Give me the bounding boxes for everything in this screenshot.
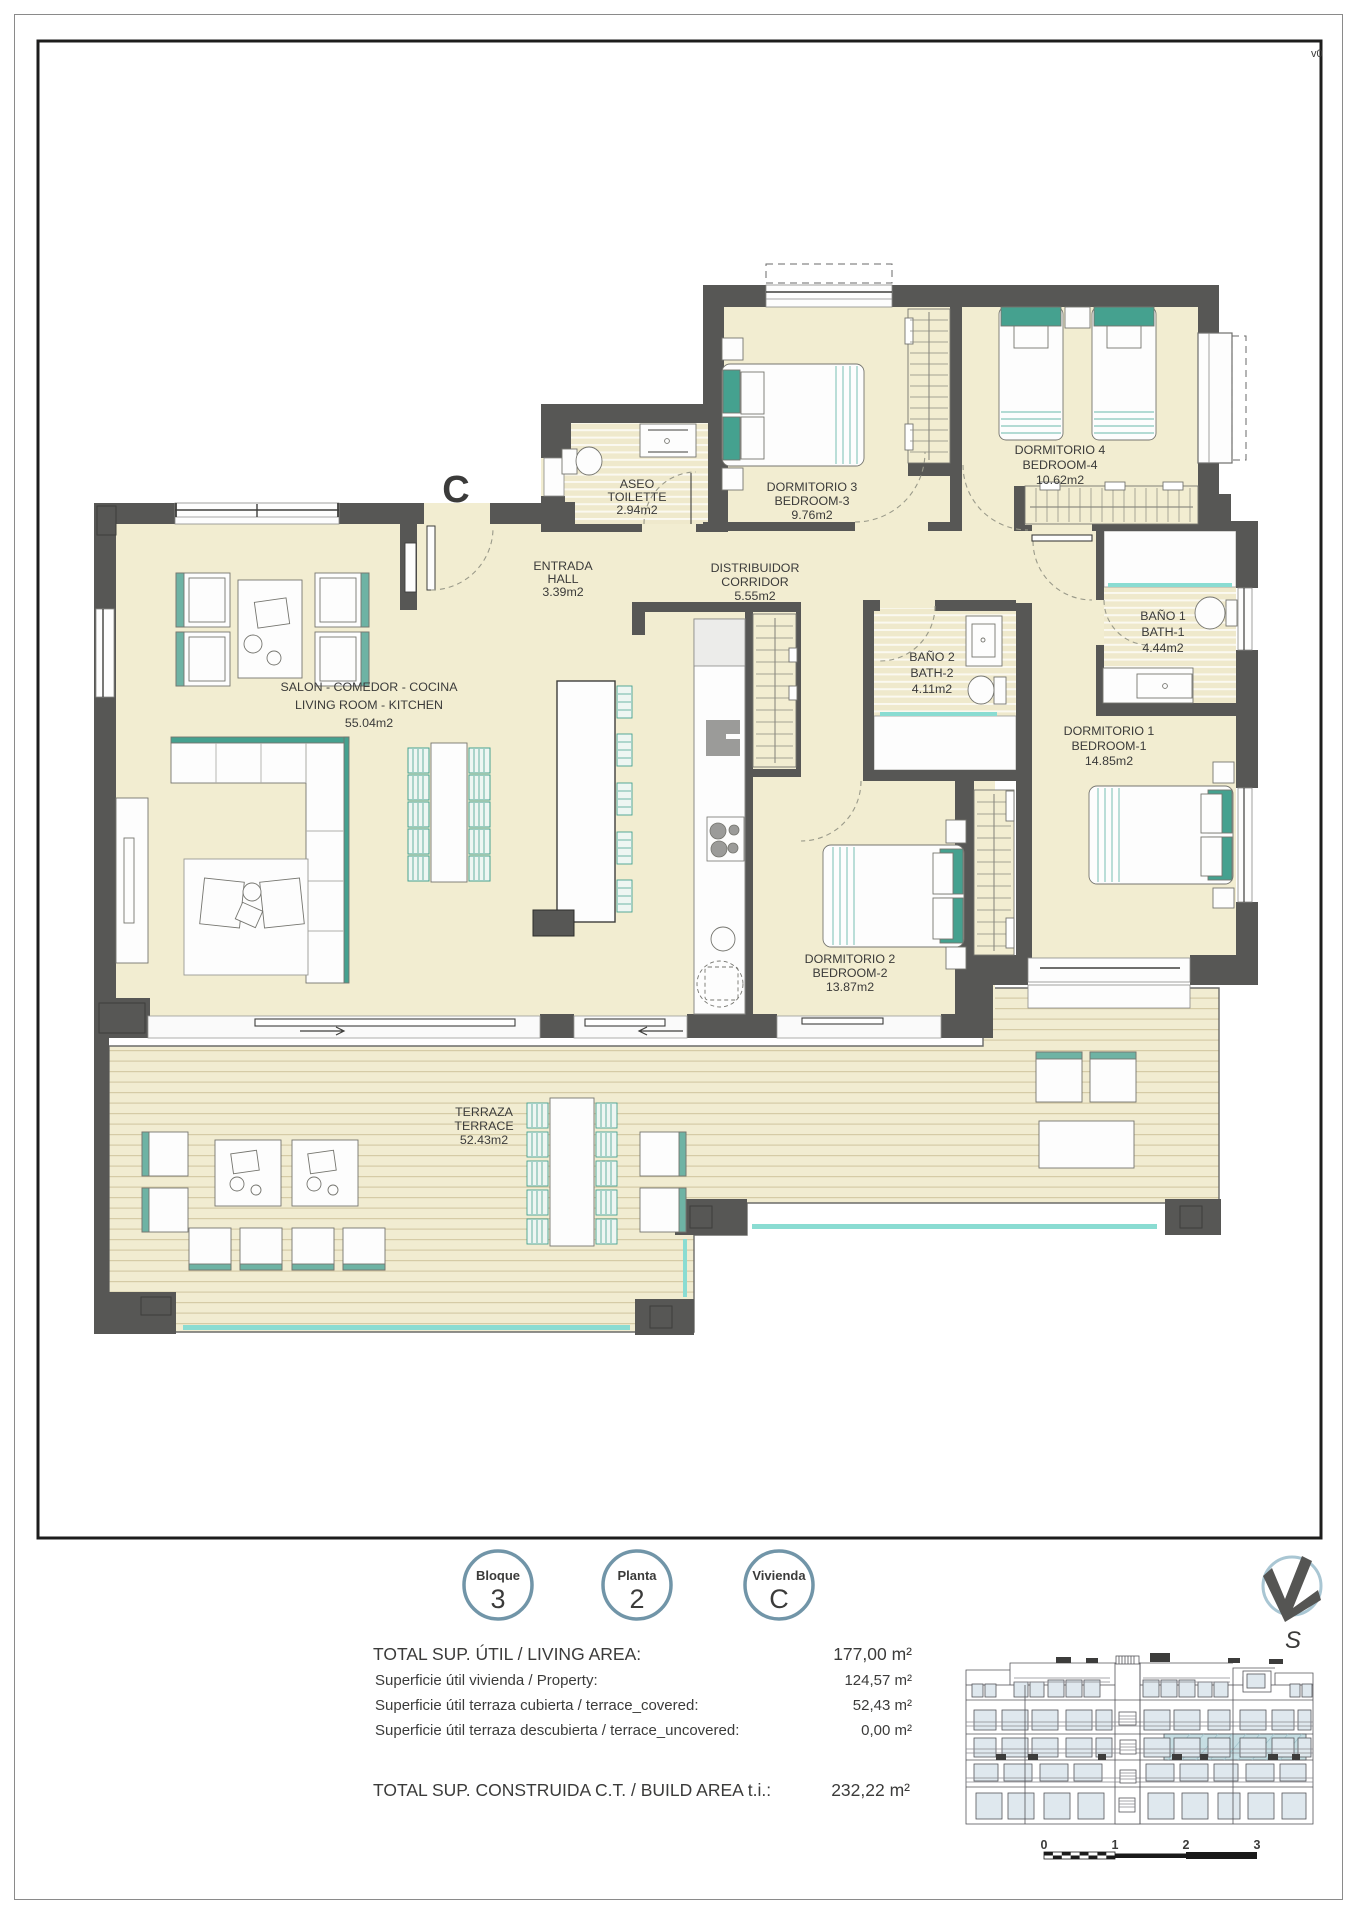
svg-text:BEDROOM-4: BEDROOM-4 <box>1022 458 1097 472</box>
svg-text:ENTRADA: ENTRADA <box>533 559 593 573</box>
svg-text:9.76m2: 9.76m2 <box>791 508 832 522</box>
svg-text:TOILETTE: TOILETTE <box>608 490 667 504</box>
svg-text:10.62m2: 10.62m2 <box>1036 473 1084 487</box>
svg-text:S: S <box>1285 1627 1301 1654</box>
svg-text:BEDROOM-2: BEDROOM-2 <box>812 966 887 980</box>
svg-text:BATH-2: BATH-2 <box>910 666 953 680</box>
svg-text:TOTAL SUP. ÚTIL / LIVING AREA:: TOTAL SUP. ÚTIL / LIVING AREA: <box>373 1643 641 1664</box>
svg-text:Superficie útil terraza descub: Superficie útil terraza descubierta / te… <box>375 1722 739 1739</box>
svg-text:DORMITORIO 4: DORMITORIO 4 <box>1015 443 1106 457</box>
svg-text:124,57 m²: 124,57 m² <box>844 1672 912 1689</box>
svg-text:232,22 m²: 232,22 m² <box>831 1780 910 1800</box>
svg-text:C: C <box>442 469 469 511</box>
svg-text:BEDROOM-3: BEDROOM-3 <box>774 494 849 508</box>
svg-text:2: 2 <box>629 1584 644 1614</box>
svg-text:0,00 m²: 0,00 m² <box>861 1722 912 1739</box>
svg-text:177,00 m²: 177,00 m² <box>833 1644 912 1664</box>
svg-text:52,43 m²: 52,43 m² <box>853 1697 912 1714</box>
svg-text:4.11m2: 4.11m2 <box>912 682 953 696</box>
svg-text:TOTAL SUP. CONSTRUIDA C.T. / B: TOTAL SUP. CONSTRUIDA C.T. / BUILD AREA … <box>373 1780 771 1800</box>
svg-text:Superficie útil terraza cubier: Superficie útil terraza cubierta / terra… <box>375 1697 699 1714</box>
svg-text:HALL: HALL <box>548 572 579 586</box>
svg-text:v0: v0 <box>1311 48 1323 60</box>
svg-text:DORMITORIO 2: DORMITORIO 2 <box>805 952 896 966</box>
svg-text:BEDROOM-1: BEDROOM-1 <box>1071 739 1146 753</box>
svg-text:3: 3 <box>490 1584 505 1614</box>
svg-text:BAÑO 1: BAÑO 1 <box>1140 609 1186 623</box>
svg-text:C: C <box>769 1584 789 1614</box>
svg-text:55.04m2: 55.04m2 <box>345 716 393 730</box>
svg-text:2: 2 <box>1183 1838 1190 1852</box>
svg-text:2.94m2: 2.94m2 <box>616 503 657 517</box>
svg-text:TERRACE: TERRACE <box>454 1119 513 1133</box>
svg-text:ASEO: ASEO <box>620 477 655 491</box>
svg-text:1: 1 <box>1112 1838 1119 1852</box>
svg-text:BATH-1: BATH-1 <box>1141 625 1184 639</box>
svg-text:CORRIDOR: CORRIDOR <box>721 575 789 589</box>
svg-text:TERRAZA: TERRAZA <box>455 1105 514 1119</box>
svg-text:Superficie útil vivienda / Pro: Superficie útil vivienda / Property: <box>375 1672 598 1689</box>
svg-text:BAÑO 2: BAÑO 2 <box>909 650 955 664</box>
svg-text:Vivienda: Vivienda <box>752 1568 806 1583</box>
svg-text:LIVING ROOM - KITCHEN: LIVING ROOM - KITCHEN <box>295 698 443 712</box>
svg-text:4.44m2: 4.44m2 <box>1142 641 1183 655</box>
svg-text:0: 0 <box>1041 1838 1048 1852</box>
svg-text:SALON - COMEDOR - COCINA: SALON - COMEDOR - COCINA <box>281 680 459 694</box>
svg-text:52.43m2: 52.43m2 <box>460 1133 508 1147</box>
svg-text:DORMITORIO 3: DORMITORIO 3 <box>767 480 858 494</box>
svg-text:Bloque: Bloque <box>476 1568 520 1583</box>
svg-text:5.55m2: 5.55m2 <box>734 589 775 603</box>
svg-text:14.85m2: 14.85m2 <box>1085 754 1133 768</box>
svg-text:DORMITORIO 1: DORMITORIO 1 <box>1064 724 1155 738</box>
svg-text:3.39m2: 3.39m2 <box>542 585 583 599</box>
svg-text:Planta: Planta <box>617 1568 657 1583</box>
svg-text:DISTRIBUIDOR: DISTRIBUIDOR <box>711 561 800 575</box>
svg-text:13.87m2: 13.87m2 <box>826 980 874 994</box>
svg-text:3: 3 <box>1254 1838 1261 1852</box>
